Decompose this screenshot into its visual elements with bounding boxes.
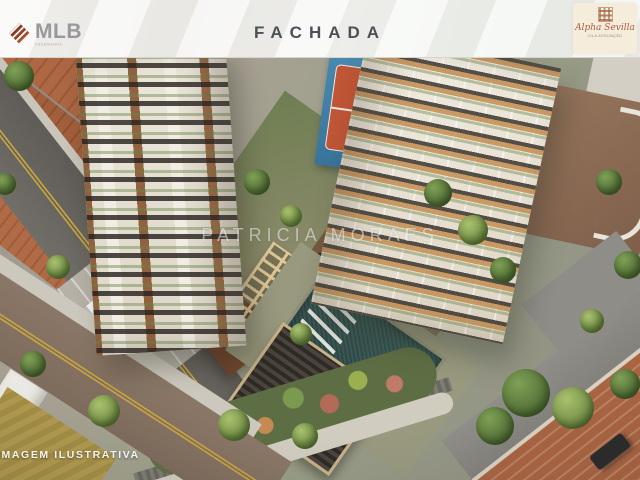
mlb-diamond-icon [9, 23, 30, 44]
header-bar: MLB ENGENHARIA FACHADA Alpha Sevilla VIL… [0, 0, 640, 58]
watermark: PATRICIA MORAES [201, 225, 438, 246]
disclaimer-text: IMAGEM ILUSTRATIVA [0, 449, 140, 461]
mlb-logo-name: MLB [35, 21, 89, 42]
azulejo-tile-icon [598, 7, 613, 22]
alpha-sevilla-caption: VILA ASSUNÇÃO [587, 34, 622, 38]
vignette-overlay [0, 57, 640, 480]
page-title: FACHADA [0, 23, 640, 43]
alpha-sevilla-name: Alpha Sevilla [573, 24, 637, 34]
alpha-sevilla-logo: Alpha Sevilla VILA ASSUNÇÃO [573, 3, 637, 54]
mlb-logo-caption: ENGENHARIA [35, 43, 62, 47]
architectural-render: PATRICIA MORAES IMAGEM ILUSTRATIVA [0, 57, 640, 480]
mlb-logo: MLB ENGENHARIA [9, 21, 89, 50]
presentation-slide: MLB ENGENHARIA FACHADA Alpha Sevilla VIL… [0, 0, 640, 480]
mlb-logo-text: MLB ENGENHARIA [35, 21, 89, 50]
